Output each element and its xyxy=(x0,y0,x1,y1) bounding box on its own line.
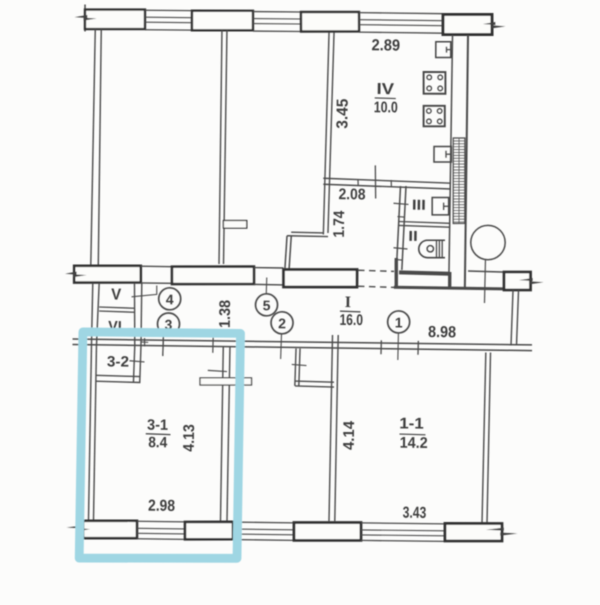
svg-text:4.13: 4.13 xyxy=(181,424,198,452)
svg-text:I: I xyxy=(345,294,351,311)
svg-text:10.0: 10.0 xyxy=(374,99,398,116)
svg-text:2.08: 2.08 xyxy=(338,186,366,203)
svg-text:4.14: 4.14 xyxy=(341,421,358,451)
svg-text:2.89: 2.89 xyxy=(371,37,400,54)
svg-text:1.74: 1.74 xyxy=(331,210,348,238)
svg-text:3-1: 3-1 xyxy=(147,417,168,434)
svg-text:2.98: 2.98 xyxy=(148,498,175,515)
svg-text:IV: IV xyxy=(376,81,394,98)
svg-text:3.45: 3.45 xyxy=(334,98,351,128)
svg-text:II: II xyxy=(408,229,418,245)
svg-text:V: V xyxy=(111,286,121,303)
svg-text:4: 4 xyxy=(166,291,174,307)
svg-text:3.43: 3.43 xyxy=(403,505,427,522)
svg-text:1-1: 1-1 xyxy=(399,415,424,432)
svg-text:III: III xyxy=(412,198,426,214)
svg-text:5: 5 xyxy=(263,297,271,313)
svg-text:16.0: 16.0 xyxy=(339,312,363,329)
svg-text:1: 1 xyxy=(395,314,403,330)
svg-text:14.2: 14.2 xyxy=(400,435,428,452)
svg-text:3-2: 3-2 xyxy=(107,353,129,370)
svg-text:8.4: 8.4 xyxy=(148,434,168,451)
svg-text:1.38: 1.38 xyxy=(217,300,234,329)
svg-text:8.98: 8.98 xyxy=(428,324,456,341)
svg-text:2: 2 xyxy=(278,315,286,331)
